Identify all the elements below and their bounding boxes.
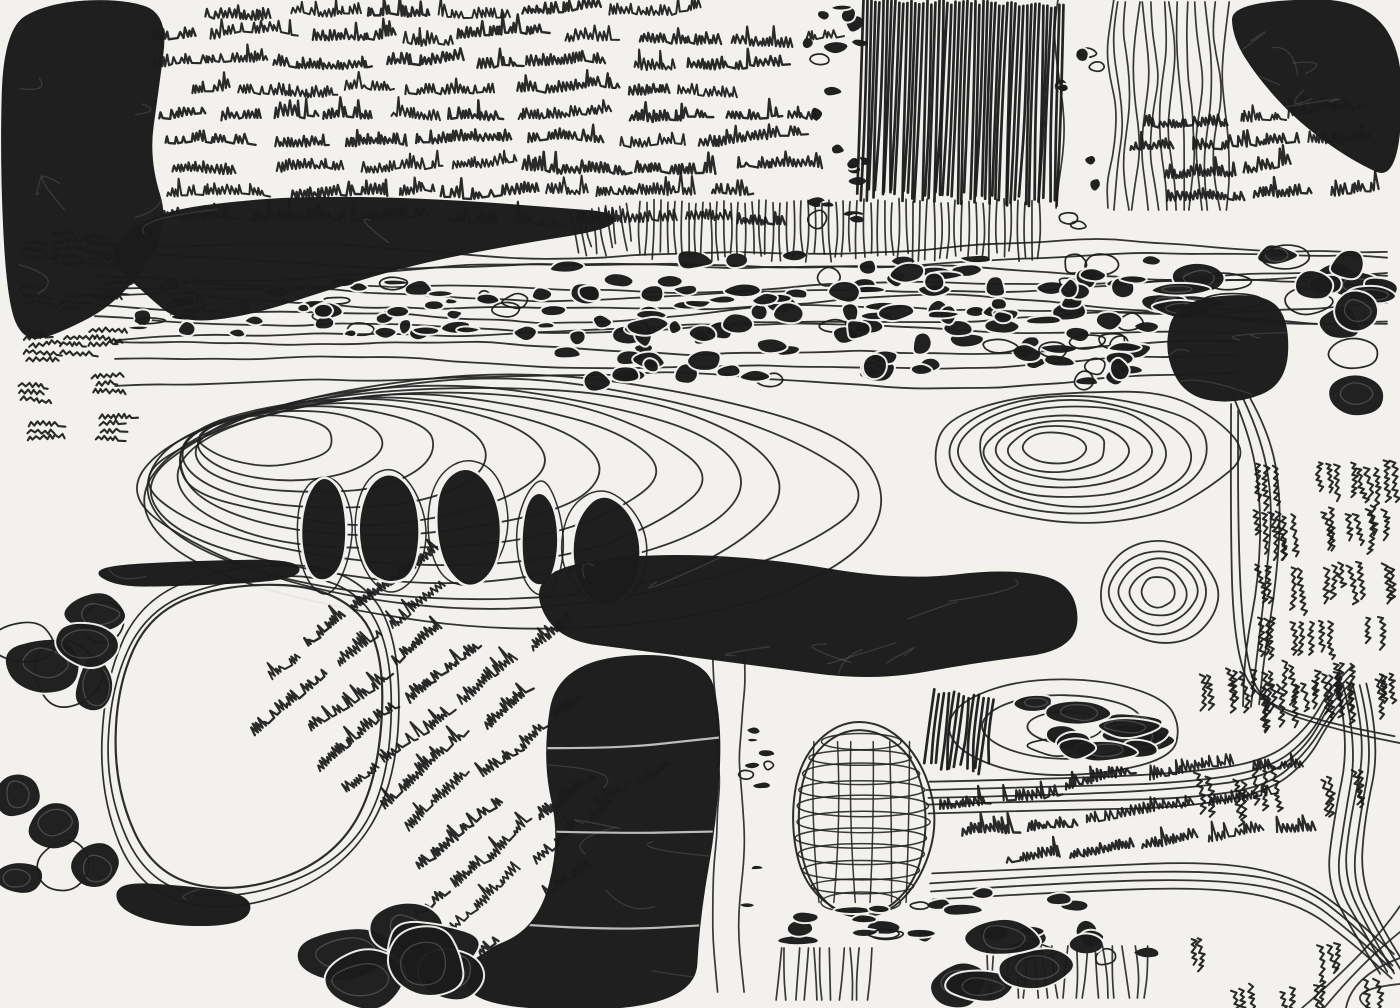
abstract-ink-drawing xyxy=(0,0,1400,1008)
ink-drawing-canvas xyxy=(0,0,1400,1008)
